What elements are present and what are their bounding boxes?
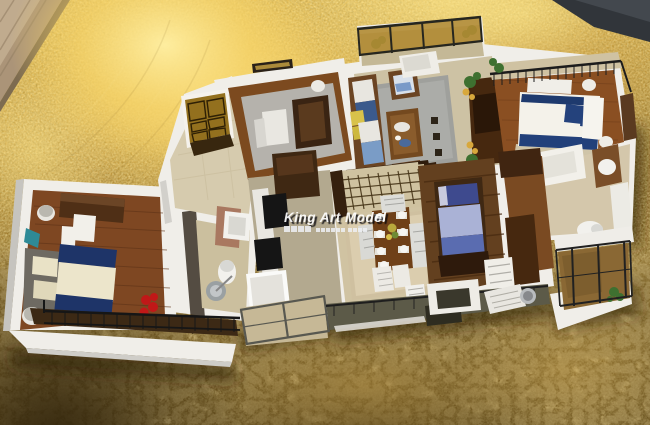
svg-text:King Art Model: King Art Model bbox=[284, 210, 387, 225]
